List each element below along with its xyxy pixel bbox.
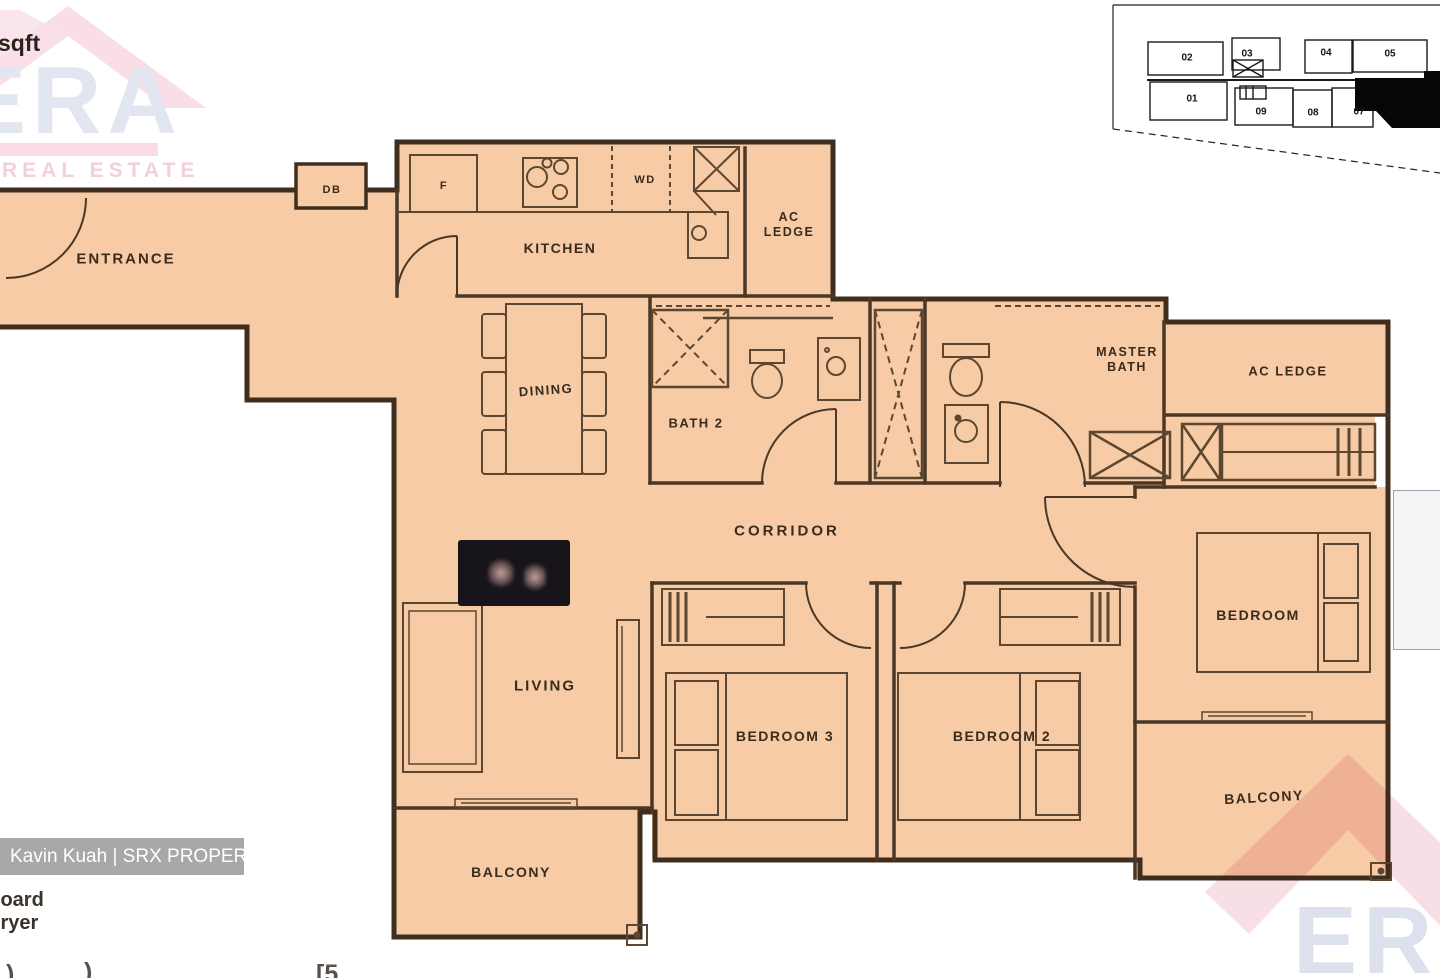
floorplan-page: ERA REAL ESTATE bbox=[0, 0, 1440, 978]
edge-fragment: [5 bbox=[316, 960, 338, 978]
era-roof-bottom-icon bbox=[0, 0, 1440, 978]
legend-board-partial: Board bbox=[0, 889, 44, 912]
era-brand-text-bottom: ERA bbox=[1293, 886, 1440, 978]
edge-fragment: ) bbox=[84, 958, 92, 978]
edge-fragment: ) bbox=[6, 960, 14, 978]
area-sqft-partial-text: sqft bbox=[0, 30, 40, 57]
agent-badge: Kavin Kuah | SRX PROPERTY bbox=[0, 838, 244, 875]
legend-dryer-partial: Dryer bbox=[0, 912, 38, 935]
